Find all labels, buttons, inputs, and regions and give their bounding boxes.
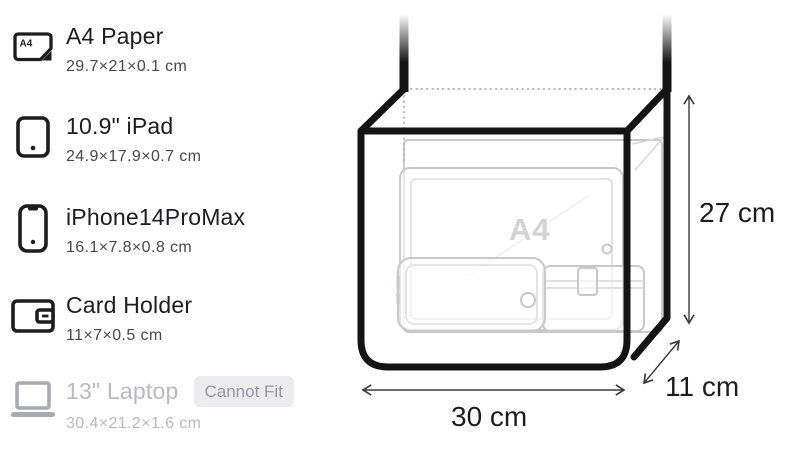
width-dimension-label: 30 cm	[451, 401, 527, 433]
a4-watermark: A4	[509, 212, 551, 248]
height-dimension-label: 27 cm	[699, 197, 775, 229]
bag-capacity-panel: A4 A4 Paper 29.7×21×0.1 cm 10.9" iPad 24…	[0, 0, 800, 455]
bag-top-left-edge	[361, 89, 404, 131]
bag-top-right-edge	[627, 89, 667, 131]
iphone-outline	[397, 258, 546, 331]
depth-dimension-label: 11 cm	[665, 371, 739, 403]
